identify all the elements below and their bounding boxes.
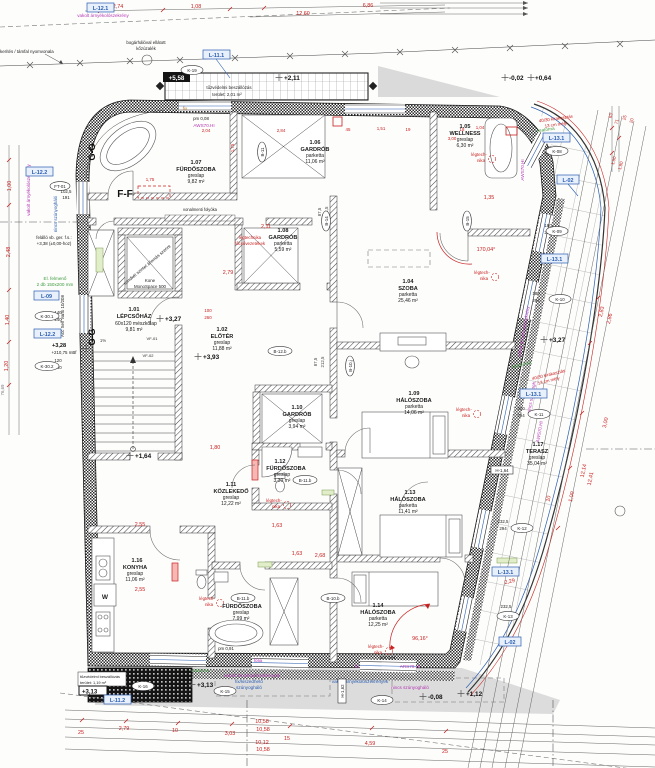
fix-note: fix xyxy=(355,664,360,669)
fire-note: tűzvédelmi beszállózás xyxy=(80,674,120,679)
wardrobe-x xyxy=(338,468,362,555)
level-value: +5,58 xyxy=(169,75,185,82)
shutter-note: vakolt árnyékolószekrény xyxy=(77,13,129,18)
svg-text:11,41 m²: 11,41 m² xyxy=(398,509,418,515)
dim: 1,63 xyxy=(272,523,283,529)
dim: 25 xyxy=(442,749,448,755)
dim: 1% xyxy=(100,338,106,343)
dim: 1,80 xyxy=(210,445,221,451)
fire-access-grid: +5,58 tűzvédelmi beszállózás terület: 2,… xyxy=(156,72,377,100)
dim: 10 xyxy=(545,495,552,502)
hvac-note: légtech- xyxy=(471,152,487,157)
svg-text:3,94 m²: 3,94 m² xyxy=(289,424,306,430)
svg-text:11,06 m²: 11,06 m² xyxy=(305,159,325,165)
svg-text:9,82 m²: 9,82 m² xyxy=(188,179,205,185)
dim: 18 xyxy=(460,127,465,132)
window-code: VF-01 xyxy=(147,336,159,341)
svg-text:12,25 m²: 12,25 m² xyxy=(368,622,388,628)
hvac-note: légtech- xyxy=(368,644,384,649)
dim: 294 xyxy=(499,526,507,531)
door-marker: B-10.b xyxy=(321,593,345,602)
svg-text:ELŐTÉR: ELŐTÉR xyxy=(211,332,234,340)
svg-text:HÁLÓSZOBA: HÁLÓSZOBA xyxy=(360,608,395,616)
svg-text:25,46 m²: 25,46 m² xyxy=(398,298,418,304)
svg-text:L-02: L-02 xyxy=(562,178,573,184)
svg-text:1.02: 1.02 xyxy=(217,327,228,333)
bed-icon xyxy=(380,515,462,557)
svg-text:1.16: 1.16 xyxy=(132,558,143,564)
dim: 10,12 xyxy=(255,740,269,746)
label-l122b: L-12.2 xyxy=(34,329,61,338)
section-gg: G-G xyxy=(87,329,97,346)
svg-text:1.11: 1.11 xyxy=(226,482,237,488)
window-code: VF-02 xyxy=(143,353,155,358)
svg-text:FT-01: FT-01 xyxy=(54,184,66,189)
floor-plan-canvas: mindkét szintet állomás szerint Kone Mon… xyxy=(0,0,655,768)
hvac-note: nika xyxy=(480,276,489,281)
hvac-note: nika xyxy=(477,158,486,163)
channel-note: csatorna xyxy=(191,668,209,673)
elevator-brand: Kone xyxy=(145,278,156,283)
dim: 2,79 xyxy=(119,726,130,732)
hvac-note: légtech- xyxy=(266,498,282,503)
svg-text:B-11.b: B-11.b xyxy=(237,596,250,601)
gravel-note: kőzúzalék xyxy=(136,46,156,51)
svg-text:1.12: 1.12 xyxy=(275,459,286,465)
svg-text:HÁLÓSZOBA: HÁLÓSZOBA xyxy=(390,495,425,503)
dim: 1,63 xyxy=(292,551,303,557)
washbasin-icon xyxy=(298,447,322,457)
elevator-model: MonoSpace 500 xyxy=(134,284,167,289)
svg-text:6,30 m²: 6,30 m² xyxy=(457,143,474,149)
svg-text:FÜRDŐSZOBA: FÜRDŐSZOBA xyxy=(222,603,261,610)
no-flyscreen-note: nincs szúnyogháló xyxy=(53,195,58,232)
svg-text:FÜRDŐSZOBA: FÜRDŐSZOBA xyxy=(176,166,215,173)
parapet-note: pm 0,91 xyxy=(380,655,396,660)
dim: 2,79 xyxy=(223,270,234,276)
svg-text:B-12.b: B-12.b xyxy=(274,349,287,354)
svg-text:1.09: 1.09 xyxy=(409,391,420,397)
level-value: +3,13 xyxy=(82,690,98,696)
level-value: +3,27 xyxy=(165,316,182,323)
svg-text:K-30.2: K-30.2 xyxy=(41,364,54,369)
svg-text:1.10: 1.10 xyxy=(292,405,303,411)
height-marker: H-1,62 xyxy=(338,679,346,703)
dim: 1,75 xyxy=(230,143,235,152)
bed-icon xyxy=(362,412,448,458)
svg-text:35,04 m²: 35,04 m² xyxy=(527,461,547,467)
window-marker: K-13 xyxy=(497,611,519,620)
dim: 45 xyxy=(346,127,351,132)
svg-text:7,99 m²: 7,99 m² xyxy=(233,616,250,622)
dim: 1,04 xyxy=(476,125,485,130)
fence-note: kerítés / támfal nyomvonala xyxy=(0,49,54,54)
svg-text:9,81 m²: 9,81 m² xyxy=(126,327,143,333)
dim: 1,00 xyxy=(7,181,13,192)
dim: 96,16° xyxy=(412,636,428,642)
hvac-main-note: légtechnika xyxy=(239,235,262,240)
svg-text:L-12.1: L-12.1 xyxy=(93,6,109,12)
svg-text:K-19: K-19 xyxy=(187,68,197,73)
svg-text:1.06: 1.06 xyxy=(310,140,321,146)
height-marker: H-1,64 xyxy=(491,466,513,474)
hvac-main-note: főcsővezetékek xyxy=(235,241,266,246)
svg-text:L-02: L-02 xyxy=(504,640,515,646)
window-marker: K-09 xyxy=(546,226,568,235)
label-l09: L-09 xyxy=(34,291,59,300)
svg-text:B-10.b: B-10.b xyxy=(327,596,340,601)
svg-text:L-12.2: L-12.2 xyxy=(40,332,56,338)
rc-note: felálló vb. ger. f.s.: xyxy=(36,235,71,240)
window-marker: K-11 xyxy=(528,409,550,418)
dim: 3,03 xyxy=(225,731,236,737)
drain-note: vonalmenti folyóka xyxy=(183,207,218,212)
dim: 232,5 xyxy=(498,519,510,524)
dim: 10 xyxy=(172,728,178,734)
svg-text:L-13.1: L-13.1 xyxy=(526,392,542,398)
dim: 15 xyxy=(284,736,290,742)
svg-text:14,06 m²: 14,06 m² xyxy=(404,410,424,416)
dim: 232,5 xyxy=(501,604,513,609)
level-value: +1,64 xyxy=(135,453,152,460)
svg-text:L-11.2: L-11.2 xyxy=(110,698,125,704)
dim: 120 xyxy=(54,358,62,363)
level-value: +1,12 xyxy=(466,691,483,698)
dim: 1,51 xyxy=(377,126,386,131)
dim: 2,04 xyxy=(202,128,211,133)
dim: 260 xyxy=(204,315,212,320)
svg-text:L-09: L-09 xyxy=(41,294,52,300)
svg-text:K-10: K-10 xyxy=(555,297,565,302)
dim: 1,35 xyxy=(484,195,495,201)
no-flyscreen-note: nincs szúnyogháló xyxy=(391,685,429,690)
dim: 4,59 xyxy=(365,741,376,747)
rc-note: +3,38 (±0,00-hoz) xyxy=(37,241,72,246)
hvac-note: légtech- xyxy=(474,270,490,275)
foil-note: fólia xyxy=(254,658,263,663)
label-l131: L-13.1 xyxy=(543,133,570,142)
level-value: -0,08 xyxy=(428,694,443,701)
svg-text:1.04: 1.04 xyxy=(403,279,415,285)
dim: 10,58 xyxy=(256,727,270,733)
svg-text:GARDRÓB: GARDRÓB xyxy=(301,145,330,153)
label-l131d: L-13.1 xyxy=(492,567,519,576)
dim: 191 xyxy=(62,195,70,200)
svg-text:L-13.1: L-13.1 xyxy=(549,136,565,142)
label-l02b: L-02 xyxy=(499,637,521,646)
level-value: +3,13 xyxy=(197,682,214,689)
svg-text:K-30.1: K-30.1 xyxy=(41,314,54,319)
window-marker: K-30.2 xyxy=(35,361,59,370)
dim: 100 xyxy=(204,308,212,313)
dim: 2,84 xyxy=(277,128,286,133)
svg-text:GARDRÓB: GARDRÓB xyxy=(283,410,312,418)
svg-text:11,88 m²: 11,88 m² xyxy=(212,346,232,352)
door-marker: B-15 xyxy=(463,211,472,231)
shutter-note: vakolt árnyékolószekrények xyxy=(224,673,281,678)
window-type: AWS70.HI xyxy=(520,159,525,180)
level-value: +3,93 xyxy=(203,354,220,361)
toilet-icon xyxy=(196,570,207,589)
svg-text:1.01: 1.01 xyxy=(129,307,140,313)
level-value: +0,64 xyxy=(535,75,552,82)
svg-text:1.13: 1.13 xyxy=(405,490,416,496)
fire-note: tűzvédelmi beszállózás xyxy=(206,85,252,90)
washing-machine: W xyxy=(94,584,116,606)
svg-text:K-14: K-14 xyxy=(377,698,387,703)
svg-text:K-09: K-09 xyxy=(552,229,562,234)
dim: 87,5 xyxy=(313,357,318,366)
level-value: +3,27 xyxy=(549,337,566,344)
svg-text:1.17: 1.17 xyxy=(533,442,544,448)
window-marker: FT-01 xyxy=(50,182,70,191)
floor-plan-page: mindkét szintet állomás szerint Kone Mon… xyxy=(0,0,655,768)
window-marker: K-10 xyxy=(549,294,571,303)
oval-bathtub-icon xyxy=(209,620,263,646)
dim: 19 xyxy=(406,127,411,132)
svg-text:K-12: K-12 xyxy=(517,526,527,531)
level-value: +2,11 xyxy=(284,75,300,82)
svg-text:1.14: 1.14 xyxy=(373,603,385,609)
svg-text:H-1,64: H-1,64 xyxy=(495,468,509,473)
level-value: -0,02 xyxy=(509,75,524,82)
svg-text:L-12.2: L-12.2 xyxy=(32,170,48,176)
section-ff: F-F xyxy=(117,189,133,200)
window-marker: K-30.1 xyxy=(35,311,59,320)
svg-text:B-10.j: B-10.j xyxy=(348,360,353,371)
door-marker: B-11 xyxy=(258,142,267,162)
svg-text:5,59 m²: 5,59 m² xyxy=(275,247,292,253)
dim: 1,75 xyxy=(146,177,155,182)
washbasin-icon xyxy=(214,572,228,582)
svg-text:GARDRÓB: GARDRÓB xyxy=(269,233,298,241)
dim: 10,58 xyxy=(256,747,270,753)
window-marker: K-14 xyxy=(371,695,393,704)
dim: 212,5 xyxy=(320,356,325,368)
svg-text:K-13: K-13 xyxy=(503,614,513,619)
svg-text:KÖZLEKEDŐ: KÖZLEKEDŐ xyxy=(213,488,249,495)
svg-text:FÜRDŐSZOBA: FÜRDŐSZOBA xyxy=(266,465,305,472)
gravel-note: bogárhálóval ellátott xyxy=(126,40,166,45)
parapet-note: pm 0,08 xyxy=(193,116,209,121)
hvac-note: nika xyxy=(462,413,471,418)
window-type: ARS70.HI xyxy=(400,664,420,669)
hvac-note: légtech- xyxy=(199,596,215,601)
wardrobe-x xyxy=(270,578,298,645)
dim: 2,68 xyxy=(315,553,326,559)
label-l112: L-11.2 xyxy=(104,695,131,704)
window-marker: K-08 xyxy=(546,146,568,155)
dim: 76,69 xyxy=(0,384,5,396)
dim: 12,60 xyxy=(296,11,310,17)
dim: 87,5 xyxy=(317,207,322,216)
svg-text:B-11.b: B-11.b xyxy=(299,478,312,483)
fire-note: terület: 1,19 m² xyxy=(80,680,107,685)
dim: 25 xyxy=(78,730,84,736)
svg-text:12,22 m²: 12,22 m² xyxy=(221,501,241,507)
hvac-note: nika xyxy=(374,650,383,655)
svg-text:1.08: 1.08 xyxy=(278,228,289,234)
svg-text:K-15: K-15 xyxy=(220,689,230,694)
window-marker: K-19 xyxy=(181,65,203,74)
hvac-note: légtech- xyxy=(456,407,472,412)
svg-text:11,06 m²: 11,06 m² xyxy=(125,577,145,583)
door-marker: B-10.j xyxy=(346,356,355,376)
door-marker: B-14 xyxy=(322,211,331,231)
svg-text:L-13.1: L-13.1 xyxy=(547,257,563,263)
svg-text:L-13.1: L-13.1 xyxy=(498,570,514,576)
level-value: +3,28 xyxy=(52,343,66,349)
svg-text:HÁLÓSZOBA: HÁLÓSZOBA xyxy=(396,396,431,404)
linear-drain xyxy=(165,215,235,221)
window-marker: K-15 xyxy=(214,686,236,695)
dim: 294 xyxy=(532,298,540,303)
dim: 2,48 xyxy=(6,247,12,258)
svg-text:1.07: 1.07 xyxy=(191,160,202,166)
level-datum: +210,75 mBf xyxy=(51,350,77,355)
window-marker: K-16 xyxy=(132,681,154,690)
hvac-note: nika xyxy=(272,504,281,509)
svg-text:H-1,62: H-1,62 xyxy=(340,684,345,698)
svg-text:K-16: K-16 xyxy=(138,684,148,689)
dim: 1,08 xyxy=(191,4,202,10)
svg-text:3,30 m²: 3,30 m² xyxy=(274,478,291,484)
label-l122: L-12.2 xyxy=(26,167,53,176)
window-marker: K-12 xyxy=(511,523,533,532)
door-marker: B-11.b xyxy=(293,475,317,484)
shutter-note: szúnyogháló xyxy=(236,685,262,690)
hvac-note: nika xyxy=(205,602,214,607)
svg-text:LÉPCSŐHÁZ: LÉPCSŐHÁZ xyxy=(117,312,152,320)
dim: 6,86 xyxy=(363,3,374,9)
dim: 180 xyxy=(532,291,540,296)
svg-text:B-11: B-11 xyxy=(260,147,265,157)
svg-text:B-14: B-14 xyxy=(324,216,329,226)
parapet-note: pm 0,91 xyxy=(218,646,234,651)
fire-note: terület: 2,01 m² xyxy=(212,92,242,97)
dim: 294 xyxy=(517,413,525,418)
electrical-riser-note: El. felmenő xyxy=(44,276,67,281)
dim: 2,55 xyxy=(135,587,146,593)
bed-icon xyxy=(352,572,438,606)
shutter-note: fix/kiszedhető xyxy=(235,679,263,684)
dim: 1,40 xyxy=(5,315,11,326)
label-l131b: L-13.1 xyxy=(541,254,568,263)
dim: 2,55 xyxy=(135,522,146,528)
door-marker: B-12.b xyxy=(268,346,292,355)
section-gg: G-G xyxy=(87,144,97,161)
dim: 1,20 xyxy=(4,361,10,372)
svg-text:L-11.1: L-11.1 xyxy=(209,53,224,59)
svg-text:K-11: K-11 xyxy=(535,412,545,417)
label-l131c: L-13.1 xyxy=(520,389,547,398)
door-marker: B-11.b xyxy=(231,593,255,602)
dim: 210 xyxy=(517,406,525,411)
svg-text:K-08: K-08 xyxy=(552,149,562,154)
dim: 170,04° xyxy=(477,247,496,253)
dim: 10,58 xyxy=(255,719,269,725)
fix-note: fix xyxy=(183,106,188,111)
svg-text:B-15: B-15 xyxy=(465,216,470,226)
dim: 2,11 xyxy=(261,224,271,230)
washing-machine-label: W xyxy=(102,594,109,601)
dim: 3,00 xyxy=(448,136,457,141)
electrical-riser-note: 2 db 150x200 mm xyxy=(37,282,74,287)
